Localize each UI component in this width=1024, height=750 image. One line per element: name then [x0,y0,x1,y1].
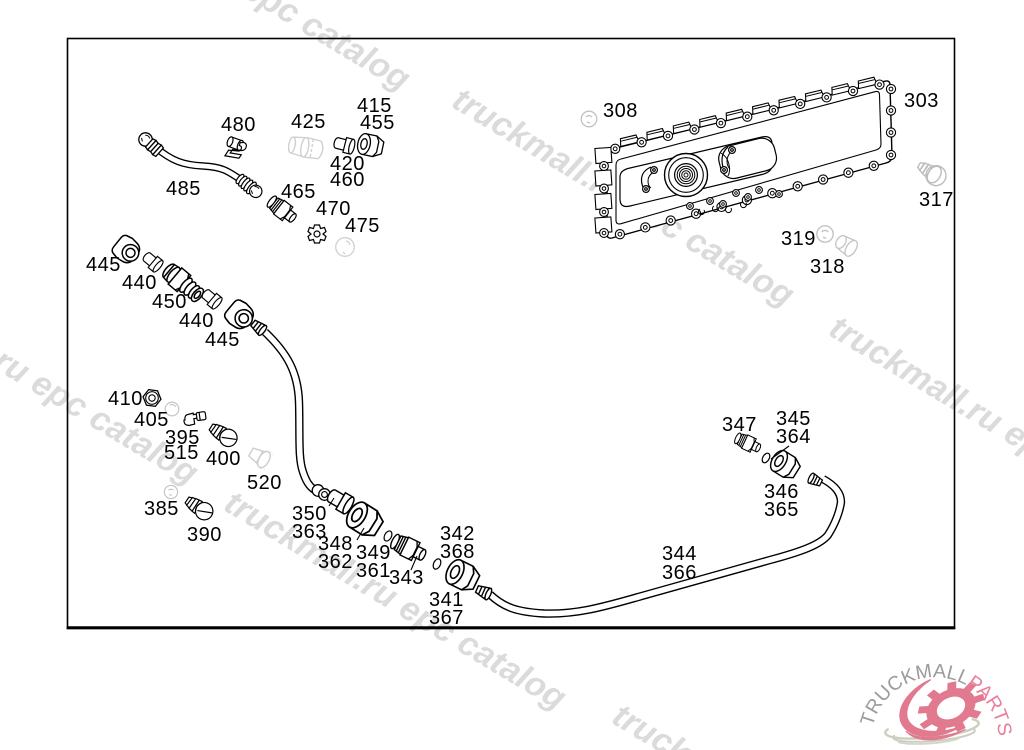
svg-text:465: 465 [281,181,316,203]
svg-text:367: 367 [429,607,464,629]
svg-text:445: 445 [205,329,240,351]
svg-text:362: 362 [318,551,353,573]
svg-text:319: 319 [781,228,816,250]
svg-text:303: 303 [904,90,939,112]
svg-text:520: 520 [247,472,282,494]
svg-text:317: 317 [919,189,954,211]
svg-text:475: 475 [345,215,380,237]
svg-text:368: 368 [440,541,475,563]
svg-text:390: 390 [187,524,222,546]
svg-text:361: 361 [356,560,391,582]
svg-text:400: 400 [206,448,241,470]
svg-text:347: 347 [722,414,757,436]
svg-text:425: 425 [291,111,326,133]
svg-text:385: 385 [144,498,179,520]
svg-text:455: 455 [360,112,395,134]
svg-text:485: 485 [166,178,201,200]
svg-text:480: 480 [221,114,256,136]
svg-text:405: 405 [134,409,169,431]
svg-text:460: 460 [330,169,365,191]
svg-text:515: 515 [164,442,199,464]
svg-text:364: 364 [776,426,811,448]
svg-text:318: 318 [810,256,845,278]
svg-text:366: 366 [662,562,697,584]
svg-text:365: 365 [764,499,799,521]
svg-text:308: 308 [603,100,638,122]
svg-text:343: 343 [389,567,424,589]
svg-text:410: 410 [108,388,143,410]
svg-text:445: 445 [86,254,121,276]
